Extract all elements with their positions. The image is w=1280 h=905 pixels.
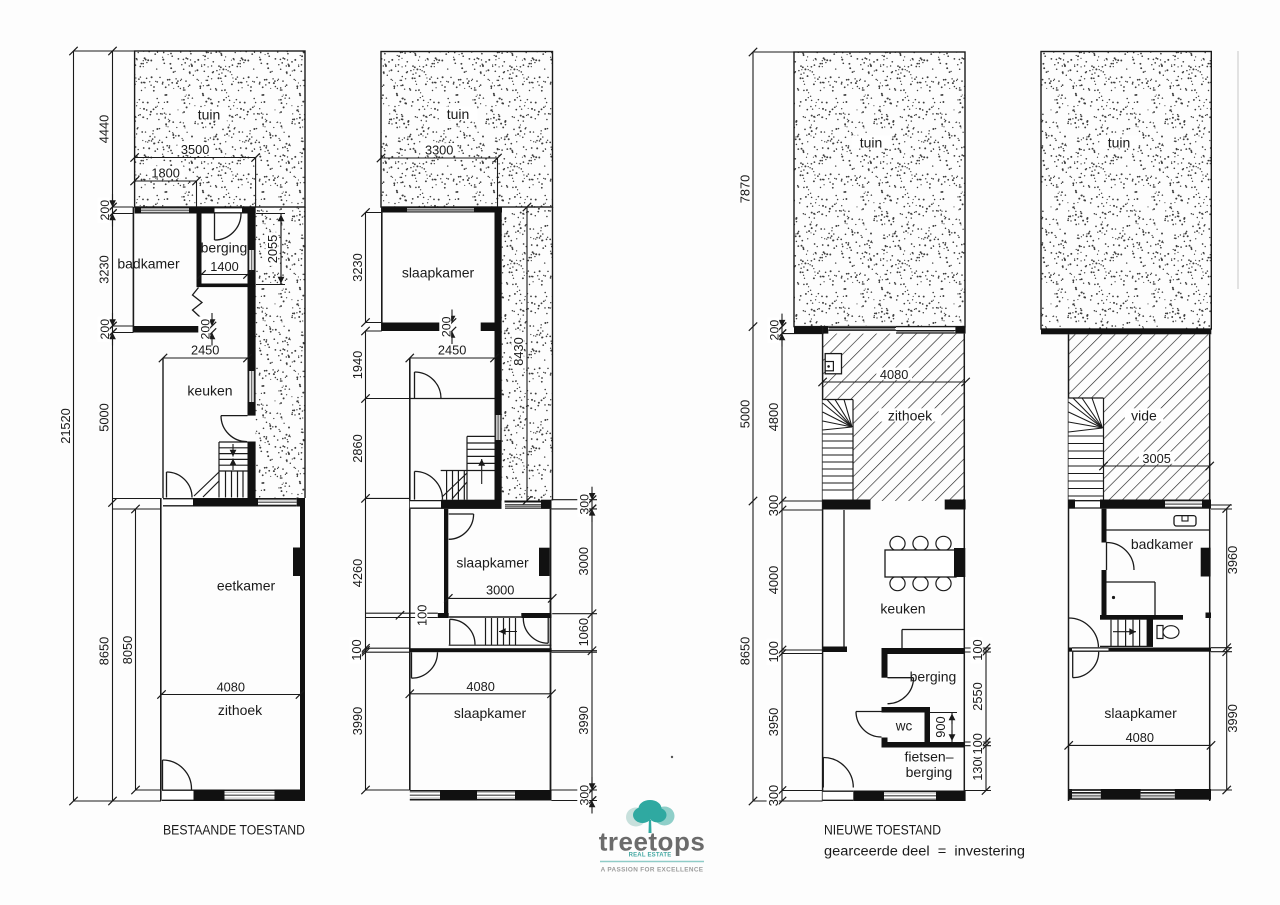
svg-text:berging: berging xyxy=(910,669,957,685)
svg-text:slaapkamer: slaapkamer xyxy=(456,555,529,571)
svg-text:200: 200 xyxy=(198,319,212,340)
svg-text:200: 200 xyxy=(98,200,112,221)
svg-text:300: 300 xyxy=(577,785,591,806)
svg-text:300: 300 xyxy=(766,785,781,806)
svg-text:100: 100 xyxy=(970,639,985,660)
svg-text:4080: 4080 xyxy=(217,679,245,694)
svg-text:4080: 4080 xyxy=(466,679,494,694)
svg-text:3005: 3005 xyxy=(1142,451,1170,466)
svg-text:4080: 4080 xyxy=(1126,730,1154,745)
svg-text:slaapkamer: slaapkamer xyxy=(402,265,475,281)
svg-text:gearceerde deel = investerin: gearceerde deel = investering xyxy=(824,844,1025,859)
svg-text:200: 200 xyxy=(439,316,453,337)
svg-text:4260: 4260 xyxy=(350,559,365,587)
svg-text:keuken: keuken xyxy=(880,601,925,617)
svg-text:slaapkamer: slaapkamer xyxy=(454,705,527,721)
svg-text:tuin: tuin xyxy=(447,106,470,122)
svg-text:fietsen–: fietsen– xyxy=(904,749,953,765)
svg-text:tuin: tuin xyxy=(860,135,883,151)
svg-text:NIEUWE TOESTAND: NIEUWE TOESTAND xyxy=(824,823,941,838)
svg-text:100: 100 xyxy=(766,641,781,662)
svg-text:1400: 1400 xyxy=(210,259,238,274)
svg-text:1060: 1060 xyxy=(576,618,591,646)
svg-text:5000: 5000 xyxy=(737,400,752,428)
svg-text:zithoek: zithoek xyxy=(888,408,933,424)
svg-text:2450: 2450 xyxy=(191,342,219,357)
svg-text:300: 300 xyxy=(766,495,781,516)
svg-text:3230: 3230 xyxy=(350,253,365,281)
svg-text:3300: 3300 xyxy=(425,142,453,157)
svg-text:3950: 3950 xyxy=(766,708,781,736)
svg-text:3230: 3230 xyxy=(96,255,111,283)
svg-text:2860: 2860 xyxy=(350,434,365,462)
svg-text:3000: 3000 xyxy=(576,547,591,575)
svg-text:4000: 4000 xyxy=(766,566,781,594)
svg-text:5000: 5000 xyxy=(96,403,111,431)
svg-text:8650: 8650 xyxy=(737,637,752,665)
svg-text:200: 200 xyxy=(767,320,781,341)
svg-text:A PASSION FOR EXCELLENCE: A PASSION FOR EXCELLENCE xyxy=(601,867,704,874)
svg-text:eetkamer: eetkamer xyxy=(217,578,276,594)
svg-text:21520: 21520 xyxy=(58,408,73,444)
svg-text:vide: vide xyxy=(1131,408,1157,424)
svg-text:4800: 4800 xyxy=(766,403,781,431)
svg-text:1940: 1940 xyxy=(350,351,365,379)
svg-text:3990: 3990 xyxy=(1225,704,1240,732)
svg-text:BESTAANDE TOESTAND: BESTAANDE TOESTAND xyxy=(163,823,305,838)
svg-text:3990: 3990 xyxy=(576,706,591,734)
svg-text:tuin: tuin xyxy=(198,107,221,123)
svg-text:tuin: tuin xyxy=(1108,135,1131,151)
svg-text:8050: 8050 xyxy=(120,636,135,664)
svg-text:1800: 1800 xyxy=(151,165,179,180)
svg-text:zithoek: zithoek xyxy=(218,702,263,718)
svg-text:900: 900 xyxy=(933,716,948,737)
svg-text:4080: 4080 xyxy=(880,367,908,382)
svg-text:slaapkamer: slaapkamer xyxy=(1104,705,1177,721)
svg-text:3960: 3960 xyxy=(1225,546,1240,574)
svg-text:8430: 8430 xyxy=(511,337,526,365)
svg-text:berging: berging xyxy=(906,764,953,780)
svg-text:100: 100 xyxy=(970,733,985,754)
svg-text:badkamer: badkamer xyxy=(1131,536,1194,552)
svg-text:badkamer: badkamer xyxy=(117,256,180,272)
svg-text:wc: wc xyxy=(895,719,913,734)
svg-text:200: 200 xyxy=(98,319,112,340)
svg-text:4440: 4440 xyxy=(96,115,111,143)
svg-text:2055: 2055 xyxy=(265,235,280,263)
svg-text:8650: 8650 xyxy=(96,637,111,665)
svg-text:berging: berging xyxy=(201,240,248,256)
svg-text:300: 300 xyxy=(577,494,591,515)
svg-text:REAL ESTATE: REAL ESTATE xyxy=(629,853,672,859)
svg-text:keuken: keuken xyxy=(187,383,232,399)
svg-text:3000: 3000 xyxy=(486,582,514,597)
svg-text:2550: 2550 xyxy=(970,682,985,710)
svg-text:100: 100 xyxy=(414,605,429,626)
svg-text:2450: 2450 xyxy=(438,342,466,357)
svg-text:7870: 7870 xyxy=(737,175,752,203)
svg-text:3990: 3990 xyxy=(350,707,365,735)
svg-text:3500: 3500 xyxy=(181,142,209,157)
svg-text:100: 100 xyxy=(349,639,364,660)
